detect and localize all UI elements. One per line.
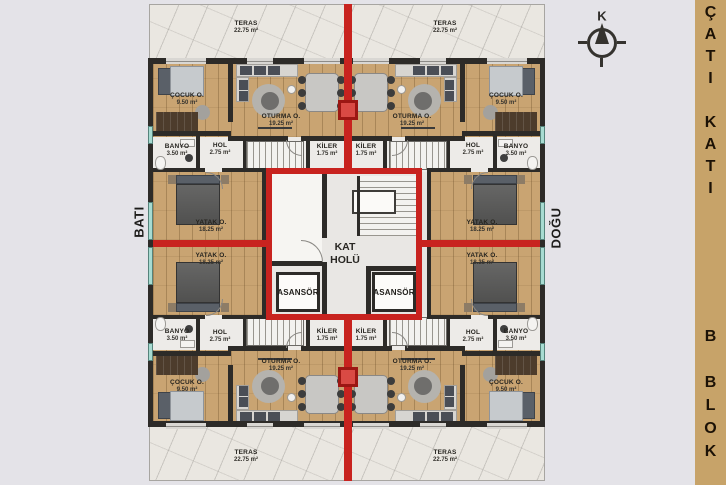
- room-label: BANYO3.50 m²: [504, 143, 528, 159]
- sofa-cushion: [445, 397, 454, 407]
- wall-opening: [487, 58, 527, 64]
- room-label: HOL2.75 m²: [210, 142, 231, 158]
- dining-table: [354, 375, 388, 414]
- room-label: YATAK O.18.25 m²: [466, 219, 497, 235]
- red-connector: [338, 367, 358, 387]
- sofa-cushion: [254, 412, 266, 421]
- window: [540, 126, 545, 144]
- direction-east-label: DOĞU: [549, 208, 564, 249]
- sofa-cushion: [427, 66, 439, 75]
- room-label-area: 19.25 m²: [393, 121, 432, 129]
- room-label: ÇOCUK O.9.50 m²: [489, 379, 523, 395]
- wall: [153, 131, 231, 136]
- side-table: [287, 85, 296, 94]
- red-wall: [153, 240, 266, 247]
- nightstand: [168, 175, 176, 184]
- room-label-area: 3.50 m²: [165, 336, 189, 344]
- elevator-right: ASANSÖR: [372, 272, 416, 312]
- red-connector: [338, 100, 358, 120]
- nightstand: [517, 303, 525, 312]
- wall-opening: [247, 423, 273, 429]
- dining-chair: [298, 403, 306, 411]
- sofa-cushion: [445, 386, 454, 396]
- dining-chair: [387, 89, 395, 97]
- sofa-cushion: [239, 80, 248, 90]
- wall-opening: [487, 423, 527, 429]
- room-label-area: 3.50 m²: [504, 151, 528, 159]
- terrace-label-area: 22.75 m²: [433, 457, 457, 465]
- wall: [405, 136, 465, 141]
- terrace-label-area: 22.75 m²: [433, 28, 457, 36]
- red-wall: [422, 240, 540, 247]
- coffee-table: [414, 377, 432, 395]
- bed-pillow: [522, 392, 535, 419]
- room-label: KİLER1.75 m²: [317, 143, 338, 159]
- compass-tick-south: [600, 58, 603, 67]
- dining-chair: [298, 102, 306, 110]
- nightstand: [464, 303, 472, 312]
- room-label: OTURMA O.19.25 m²: [262, 113, 301, 129]
- wardrobe: [495, 356, 537, 375]
- room-label-area: 18.25 m²: [466, 260, 497, 268]
- bath-fixture: [527, 317, 538, 331]
- dining-chair: [298, 76, 306, 84]
- side-table: [397, 85, 406, 94]
- wall: [243, 140, 246, 172]
- sofa-cushion: [268, 412, 280, 421]
- sofa-cushion: [445, 91, 454, 101]
- coffee-table: [261, 377, 279, 395]
- compass-north-arrow-icon: [595, 23, 609, 44]
- room-label: ÇOCUK O.9.50 m²: [170, 92, 204, 108]
- red-wall: [344, 320, 352, 481]
- sofa-cushion: [254, 66, 266, 75]
- terrace-label: TERAS22.75 m²: [433, 449, 457, 465]
- compass-tick-west: [578, 41, 587, 44]
- wall: [196, 315, 200, 351]
- sidebar-block-title: B BLOK: [695, 328, 726, 466]
- room-label: KİLER1.75 m²: [317, 328, 338, 344]
- nightstand: [464, 175, 472, 184]
- double-bed: [176, 262, 220, 303]
- dining-chair: [387, 403, 395, 411]
- wall-opening: [166, 423, 206, 429]
- wardrobe: [156, 356, 198, 375]
- room-label: KİLER1.75 m²: [356, 328, 377, 344]
- direction-west-label: BATI: [132, 206, 147, 237]
- room-label: ÇOCUK O.9.50 m²: [170, 379, 204, 395]
- room-label-area: 18.25 m²: [466, 227, 497, 235]
- sofa-cushion: [268, 66, 280, 75]
- compass-north-label: K: [597, 9, 606, 24]
- bath-fixture: [527, 156, 538, 170]
- coffee-table: [414, 92, 432, 110]
- room-label-area: 1.75 m²: [356, 151, 377, 159]
- window: [540, 247, 545, 285]
- room-label-area: 19.25 m²: [262, 121, 301, 129]
- room-label-area: 2.75 m²: [463, 150, 484, 158]
- room-label-area: 18.25 m²: [195, 260, 226, 268]
- bed-mattress: [170, 391, 204, 421]
- terrace-label-area: 22.75 m²: [234, 457, 258, 465]
- core-hall-label: KAT HOLÜ: [321, 241, 369, 266]
- wall: [228, 64, 233, 122]
- wall: [405, 346, 465, 351]
- elevator-left-label: ASANSÖR: [277, 288, 318, 297]
- room-label: YATAK O.18.25 m²: [466, 252, 497, 268]
- wall: [228, 365, 233, 423]
- room-label: HOL2.75 m²: [463, 329, 484, 345]
- room-label-area: 1.75 m²: [317, 336, 338, 344]
- wall: [462, 131, 540, 136]
- terrace-label: TERAS22.75 m²: [234, 20, 258, 36]
- room-label-area: 2.75 m²: [210, 150, 231, 158]
- sofa-cushion: [427, 412, 439, 421]
- room-label-area: 9.50 m²: [489, 387, 523, 395]
- dining-chair: [298, 89, 306, 97]
- room-label: HOL2.75 m²: [463, 142, 484, 158]
- room-label-area: 2.75 m²: [463, 337, 484, 345]
- wall: [493, 136, 497, 172]
- wall: [493, 315, 497, 351]
- room-label: HOL2.75 m²: [210, 329, 231, 345]
- wall: [196, 136, 200, 172]
- red-wall: [344, 4, 352, 168]
- room-label: OTURMA O.19.25 m²: [262, 358, 301, 374]
- room-label: BANYO3.50 m²: [165, 328, 189, 344]
- elevator-right-label: ASANSÖR: [373, 288, 414, 297]
- wall-opening: [353, 58, 389, 64]
- wall: [540, 58, 545, 427]
- wardrobe: [495, 112, 537, 131]
- terrace-label: TERAS22.75 m²: [433, 20, 457, 36]
- nightstand: [168, 303, 176, 312]
- room-label: YATAK O.18.25 m²: [195, 252, 226, 268]
- room-label-area: 9.50 m²: [170, 100, 204, 108]
- sofa-cushion: [441, 66, 453, 75]
- room-label: YATAK O.18.25 m²: [195, 219, 226, 235]
- wall-opening: [304, 423, 340, 429]
- window: [148, 126, 153, 144]
- wall: [460, 365, 465, 423]
- room-label-area: 2.75 m²: [210, 337, 231, 345]
- wall-opening: [353, 423, 389, 429]
- sofa-cushion: [239, 397, 248, 407]
- window: [148, 343, 153, 361]
- bed-pillow: [522, 68, 535, 95]
- dining-table: [354, 73, 388, 112]
- sofa-cushion: [240, 66, 252, 75]
- room-label-area: 18.25 m²: [195, 227, 226, 235]
- sofa-cushion: [239, 386, 248, 396]
- sofa-cushion: [239, 91, 248, 101]
- double-bed: [473, 262, 517, 303]
- side-table: [287, 393, 296, 402]
- right-sidebar: ÇATI KATI B BLOK: [695, 0, 726, 485]
- wall: [243, 315, 246, 347]
- dining-chair: [298, 377, 306, 385]
- room-label: OTURMA O.19.25 m²: [393, 113, 432, 129]
- wall-opening: [420, 58, 446, 64]
- window: [148, 247, 153, 285]
- room-label-area: 19.25 m²: [393, 366, 432, 374]
- dining-table: [305, 73, 339, 112]
- dining-table: [305, 375, 339, 414]
- compass-tick-east: [617, 41, 626, 44]
- sofa-cushion: [240, 412, 252, 421]
- sofa-cushion: [441, 412, 453, 421]
- room-label: BANYO3.50 m²: [165, 143, 189, 159]
- wall: [447, 315, 450, 347]
- window: [540, 202, 545, 240]
- nightstand: [221, 303, 229, 312]
- floor-plan-screenshot: ÇOCUK O.9.50 m²OTURMA O.19.25 m²BANYO3.5…: [0, 0, 726, 485]
- room-label-area: 1.75 m²: [317, 151, 338, 159]
- room-label: OTURMA O.19.25 m²: [393, 358, 432, 374]
- wall-opening: [420, 423, 446, 429]
- room-label: KİLER1.75 m²: [356, 143, 377, 159]
- wall: [447, 140, 450, 172]
- wall: [427, 172, 431, 240]
- wall-opening: [166, 58, 206, 64]
- room-label: ÇOCUK O.9.50 m²: [489, 92, 523, 108]
- wardrobe: [156, 112, 198, 131]
- dining-chair: [387, 377, 395, 385]
- room-label-area: 9.50 m²: [170, 387, 204, 395]
- sofa-cushion: [413, 66, 425, 75]
- window: [148, 202, 153, 240]
- window: [540, 343, 545, 361]
- room-label-area: 3.50 m²: [504, 336, 528, 344]
- side-table: [397, 393, 406, 402]
- coffee-table: [261, 92, 279, 110]
- bed-mattress: [489, 391, 523, 421]
- sofa-cushion: [413, 412, 425, 421]
- nightstand: [517, 175, 525, 184]
- dining-chair: [298, 390, 306, 398]
- elevator-left: ASANSÖR: [276, 272, 320, 312]
- nightstand: [221, 175, 229, 184]
- room-label-area: 19.25 m²: [262, 366, 301, 374]
- wall: [427, 247, 431, 315]
- room-label-area: 1.75 m²: [356, 336, 377, 344]
- room-label-area: 3.50 m²: [165, 151, 189, 159]
- dining-chair: [387, 102, 395, 110]
- wall: [228, 136, 288, 141]
- wall-opening: [247, 58, 273, 64]
- terrace-label: TERAS22.75 m²: [234, 449, 258, 465]
- dining-chair: [387, 76, 395, 84]
- room-label: BANYO3.50 m²: [504, 328, 528, 344]
- room-label-area: 9.50 m²: [489, 100, 523, 108]
- wall: [228, 346, 288, 351]
- wall-opening: [304, 58, 340, 64]
- terrace-label-area: 22.75 m²: [234, 28, 258, 36]
- sidebar-floor-title: ÇATI KATI: [695, 4, 726, 202]
- sofa-cushion: [445, 80, 454, 90]
- dining-chair: [387, 390, 395, 398]
- wall: [460, 64, 465, 122]
